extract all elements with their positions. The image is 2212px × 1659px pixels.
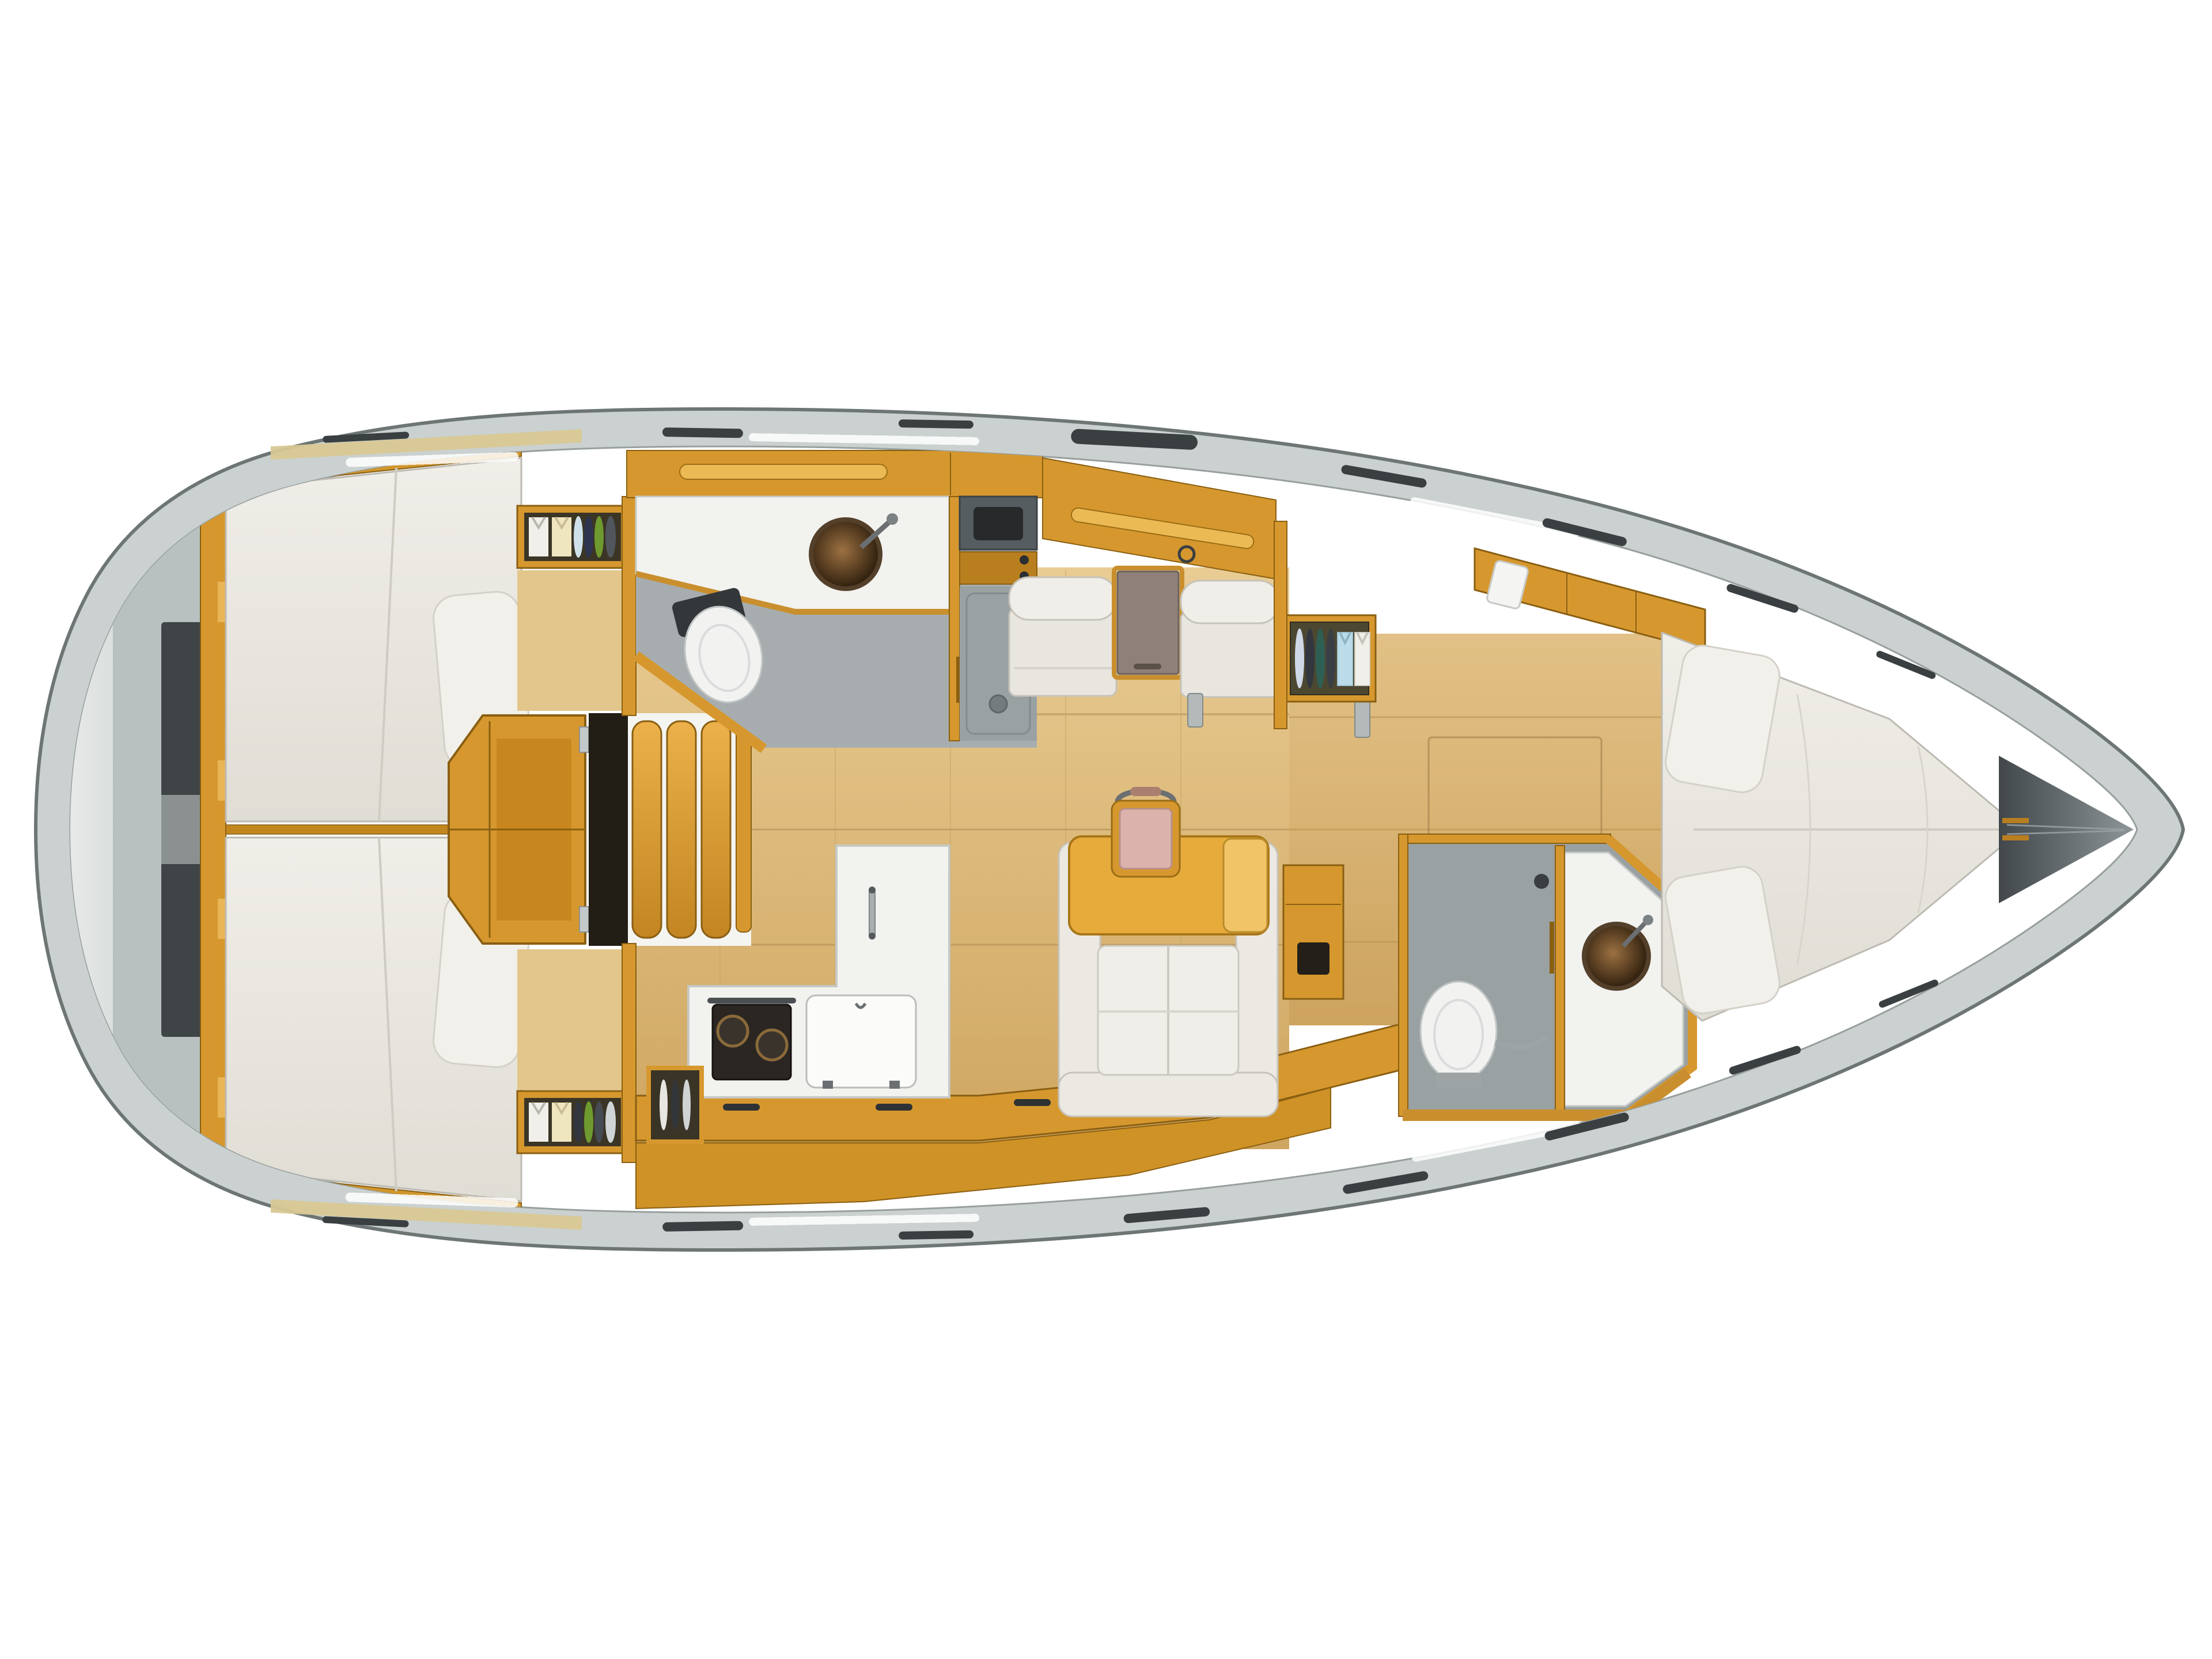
stove-rail	[707, 998, 796, 1003]
table-leaf	[1224, 839, 1267, 932]
burner	[757, 1030, 787, 1060]
hinge	[579, 727, 589, 752]
side-cabinet	[1283, 865, 1343, 999]
galley-plate-shelf	[649, 1068, 702, 1142]
armchair-right	[1181, 581, 1279, 697]
plate	[1295, 628, 1304, 688]
plate	[605, 1101, 616, 1143]
plate	[574, 1101, 583, 1143]
lid-hinge	[823, 1081, 833, 1089]
stowage-locker-port	[517, 506, 628, 568]
burner	[718, 1016, 748, 1046]
aft-cabin-entry-floor	[517, 570, 627, 711]
armchair-left	[1009, 577, 1116, 696]
step	[702, 721, 730, 938]
chart-table	[1114, 568, 1182, 677]
plate	[594, 1101, 604, 1143]
plate	[1316, 628, 1325, 688]
plate	[1305, 628, 1315, 688]
plate	[605, 516, 616, 558]
plate	[574, 516, 583, 558]
vessel-sink	[1584, 924, 1649, 988]
floorplan-svg	[0, 0, 2212, 1659]
forward-head	[1399, 834, 1692, 1116]
salon-fwd-bulkhead	[1274, 521, 1287, 729]
towel-white	[529, 1103, 548, 1142]
plate	[683, 1080, 691, 1130]
plate	[671, 1080, 679, 1130]
aft-cabin-divider-wall	[226, 825, 449, 834]
salon-locker	[1283, 615, 1376, 702]
plate	[584, 1101, 593, 1143]
fridge-lid	[806, 995, 916, 1088]
vessel-sink	[811, 520, 880, 589]
shower-divider	[949, 497, 960, 741]
drawer-handle	[723, 1104, 760, 1111]
lid-hinge	[889, 1081, 900, 1089]
towel-cream	[552, 1103, 571, 1142]
aft-cabin-entry-floor	[517, 949, 627, 1090]
pink-cushion	[1120, 809, 1172, 869]
plate	[660, 1080, 668, 1130]
step-frame	[736, 727, 751, 932]
seat-leg	[1188, 694, 1203, 727]
aft-bulkhead-wall	[200, 435, 226, 1224]
shower-head	[1534, 874, 1549, 889]
handle-wrap	[1130, 787, 1161, 796]
companionway	[449, 713, 751, 946]
shower-drain	[990, 695, 1007, 713]
partition-wall	[622, 944, 636, 1162]
fwd-head-wall-left	[1399, 834, 1408, 1116]
step	[667, 721, 696, 938]
companionway-well	[589, 713, 628, 946]
bow-fitting	[2002, 835, 2029, 840]
seat-leg	[1355, 699, 1370, 737]
shower-divider	[1555, 846, 1565, 1112]
partition-wall	[622, 497, 636, 715]
drawer-handle	[1014, 1099, 1051, 1106]
folding-chair-pink	[1112, 787, 1180, 877]
handrail	[680, 464, 887, 479]
stowage-locker-starboard	[517, 1091, 628, 1153]
port-cabinet-band	[627, 450, 1043, 498]
bow-fitting	[2002, 818, 2029, 823]
plate	[594, 516, 604, 558]
plate	[1326, 628, 1335, 688]
plate	[584, 516, 593, 558]
step	[632, 721, 661, 938]
towel-cream	[552, 517, 571, 556]
drawer-handle	[876, 1104, 912, 1111]
towel-bar	[869, 890, 875, 936]
fwd-head-wall-top	[1400, 834, 1611, 843]
towel-white	[529, 517, 548, 556]
boat-floorplan-stage	[0, 0, 2212, 1659]
hinge	[579, 907, 589, 932]
